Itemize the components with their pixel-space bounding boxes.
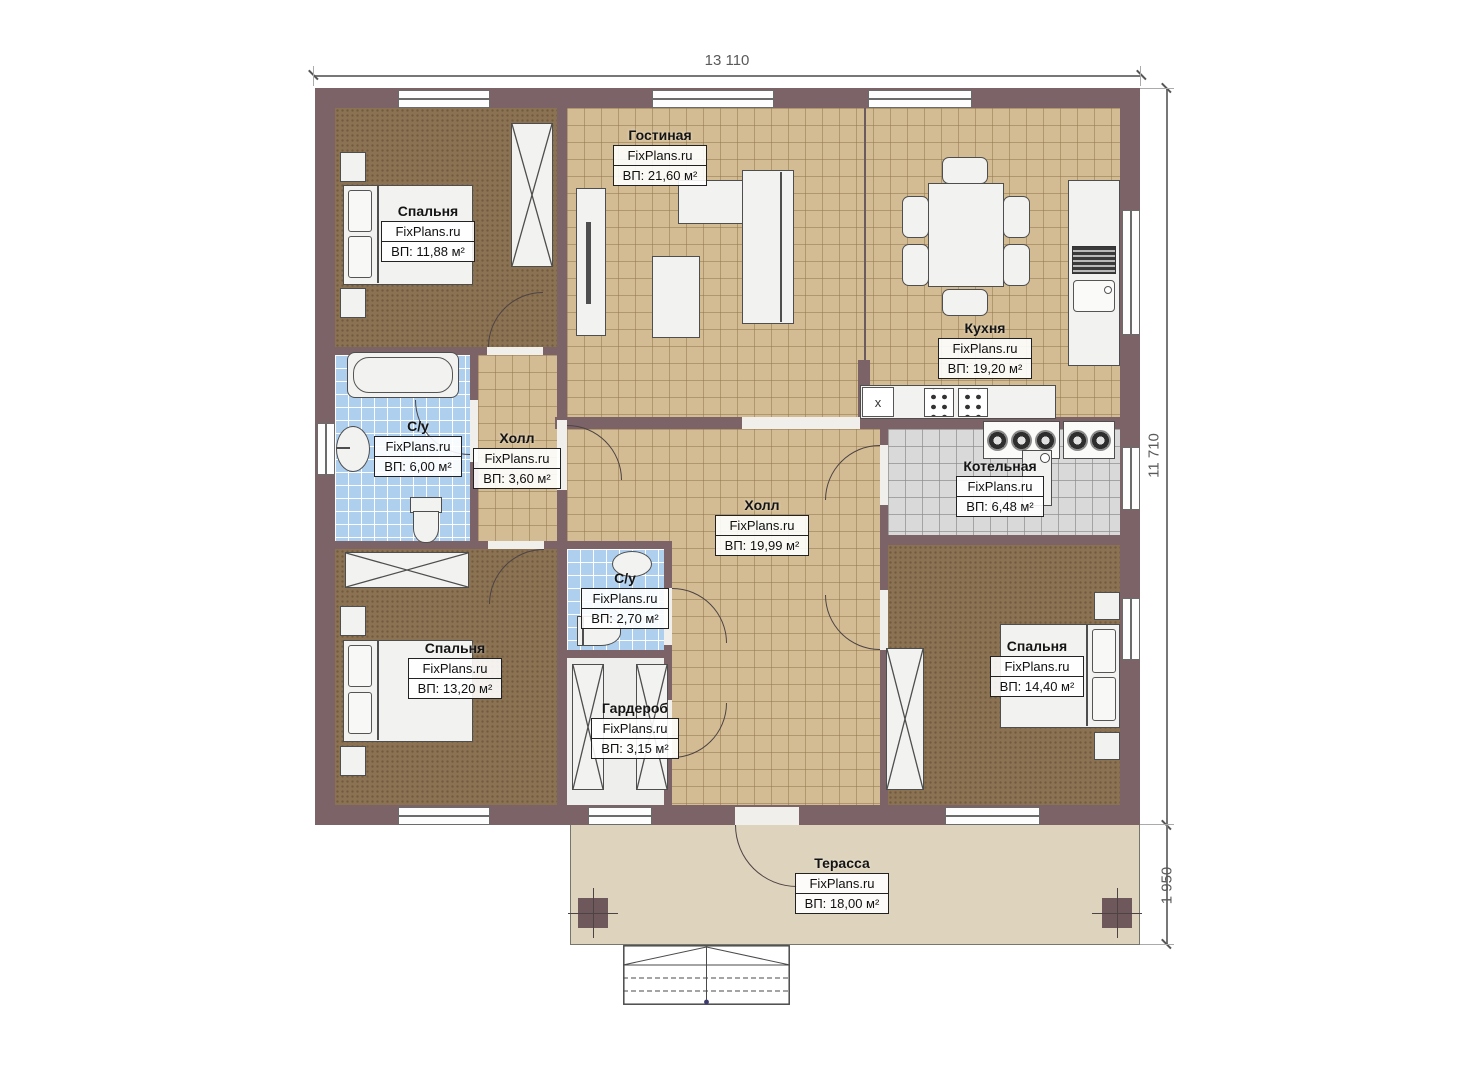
nightstand — [1094, 592, 1120, 620]
chair — [1003, 244, 1030, 286]
counter-x-box: x — [862, 387, 894, 417]
room-label-terrace: Терасса FixPlans.ru ВП: 18,00 м² — [767, 855, 917, 914]
dimension-terrace-label: 1 950 — [1159, 851, 1176, 921]
dimension-line-right — [1166, 88, 1168, 825]
cooktop-burners — [958, 388, 988, 417]
bed-headboard-line — [377, 641, 379, 740]
washer-ring-icon — [1035, 430, 1056, 451]
sofa-section — [742, 170, 794, 324]
room-name: Спальня — [962, 638, 1112, 654]
brand-text: FixPlans.ru — [991, 657, 1084, 676]
room-label-boiler-room: Котельная FixPlans.ru ВП: 6,48 м² — [925, 458, 1075, 517]
room-info-box: FixPlans.ru ВП: 3,15 м² — [591, 718, 678, 759]
room-name: Кухня — [910, 320, 1060, 336]
stove — [1072, 246, 1116, 274]
room-area: ВП: 19,20 м² — [939, 358, 1032, 378]
cooktop-burners — [924, 388, 954, 417]
room-info-box: FixPlans.ru ВП: 21,60 м² — [613, 145, 708, 186]
room-name: Спальня — [353, 203, 503, 219]
dimension-width-label: 13 110 — [313, 52, 1141, 69]
stairs-symbol — [623, 945, 790, 1005]
toilet-bowl — [413, 511, 439, 543]
wall-segment — [888, 535, 1120, 545]
room-area: ВП: 3,15 м² — [592, 738, 677, 758]
room-label-bathroom-small: С/у FixPlans.ru ВП: 2,70 м² — [550, 570, 700, 629]
room-label-bedroom-bottom-left: Спальня FixPlans.ru ВП: 13,20 м² — [380, 640, 530, 699]
brand-text: FixPlans.ru — [409, 659, 502, 678]
wardrobe-symbol — [345, 552, 469, 588]
door-opening — [880, 445, 888, 505]
room-name: Гардероб — [560, 700, 710, 716]
brand-text: FixPlans.ru — [957, 477, 1042, 496]
room-info-box: FixPlans.ru ВП: 6,48 м² — [956, 476, 1043, 517]
chair — [942, 157, 988, 184]
chair — [902, 244, 929, 286]
room-label-wardrobe-room: Гардероб FixPlans.ru ВП: 3,15 м² — [560, 700, 710, 759]
wardrobe-symbol — [886, 648, 924, 790]
nightstand — [340, 152, 366, 182]
room-area: ВП: 3,60 м² — [474, 468, 559, 488]
nightstand — [340, 746, 366, 776]
room-label-living: Гостиная FixPlans.ru ВП: 21,60 м² — [585, 127, 735, 186]
tv-screen — [586, 222, 591, 304]
room-info-box: FixPlans.ru ВП: 11,88 м² — [381, 221, 475, 262]
room-label-bedroom-top-left: Спальня FixPlans.ru ВП: 11,88 м² — [353, 203, 503, 262]
room-name: Спальня — [380, 640, 530, 656]
window — [398, 90, 490, 108]
brand-text: FixPlans.ru — [796, 874, 889, 893]
extension-line — [1140, 66, 1141, 86]
room-label-bedroom-right: Спальня FixPlans.ru ВП: 14,40 м² — [962, 638, 1112, 697]
nightstand — [340, 606, 366, 636]
window — [652, 90, 774, 108]
dimension-line-top — [313, 75, 1141, 77]
room-info-box: FixPlans.ru ВП: 18,00 м² — [795, 873, 890, 914]
extension-line — [1140, 944, 1174, 945]
faucet-dot — [1104, 286, 1112, 294]
room-info-box: FixPlans.ru ВП: 13,20 м² — [408, 658, 503, 699]
tv-cabinet — [576, 188, 606, 336]
bathtub-inner — [353, 357, 453, 393]
room-area: ВП: 18,00 м² — [796, 893, 889, 913]
chair — [902, 196, 929, 238]
room-name: Холл — [442, 430, 592, 446]
dimension-height-label: 11 710 — [1146, 421, 1163, 491]
room-info-box: FixPlans.ru ВП: 14,40 м² — [990, 656, 1085, 697]
room-area: ВП: 19,99 м² — [716, 535, 809, 555]
chair — [1003, 196, 1030, 238]
brand-text: FixPlans.ru — [382, 222, 474, 241]
room-name: Терасса — [767, 855, 917, 871]
coffee-table — [652, 256, 700, 338]
room-info-box: FixPlans.ru ВП: 3,60 м² — [473, 448, 560, 489]
room-info-box: FixPlans.ru ВП: 2,70 м² — [581, 588, 668, 629]
room-label-hall-central: Холл FixPlans.ru ВП: 19,99 м² — [687, 497, 837, 556]
chair — [942, 289, 988, 316]
brand-text: FixPlans.ru — [716, 516, 809, 535]
extension-line — [1140, 824, 1174, 825]
floor-plan-canvas: x Гостиная FixPlans.ru ВП: 21,60 м² — [0, 0, 1473, 1080]
room-area: ВП: 21,60 м² — [614, 165, 707, 185]
brand-text: FixPlans.ru — [614, 146, 707, 165]
stairs — [623, 945, 790, 1005]
x-marker-text: x — [875, 395, 882, 410]
room-label-kitchen: Кухня FixPlans.ru ВП: 19,20 м² — [910, 320, 1060, 379]
brand-text: FixPlans.ru — [582, 589, 667, 608]
brand-text: FixPlans.ru — [939, 339, 1032, 358]
appliance-row — [1063, 421, 1115, 459]
wide-opening — [742, 417, 860, 429]
room-label-hall-small: Холл FixPlans.ru ВП: 3,60 м² — [442, 430, 592, 489]
room-name: Котельная — [925, 458, 1075, 474]
window — [588, 807, 652, 825]
room-area: ВП: 14,40 м² — [991, 676, 1084, 696]
pillow — [348, 692, 372, 734]
nightstand — [340, 288, 366, 318]
room-area: ВП: 13,20 м² — [409, 678, 502, 698]
washer-ring-icon — [987, 430, 1008, 451]
dining-table — [928, 183, 1004, 287]
door-opening — [488, 541, 544, 549]
brand-text: FixPlans.ru — [592, 719, 677, 738]
partition-line — [864, 108, 866, 360]
post-axis-line — [593, 888, 594, 938]
room-area: ВП: 2,70 м² — [582, 608, 667, 628]
terrace-door-opening — [735, 807, 799, 825]
window — [945, 807, 1040, 825]
sofa-back-line — [780, 172, 782, 322]
washer-ring-icon — [1067, 430, 1088, 451]
window — [1122, 598, 1140, 660]
window — [317, 423, 335, 475]
door-opening — [880, 590, 888, 650]
room-name: С/у — [550, 570, 700, 586]
room-name: Холл — [687, 497, 837, 513]
washer-ring-icon — [1011, 430, 1032, 451]
wall-segment — [567, 650, 664, 658]
door-opening — [487, 347, 543, 355]
window — [868, 90, 972, 108]
wall-segment — [567, 541, 664, 549]
pillow — [348, 645, 372, 687]
nightstand — [1094, 732, 1120, 760]
wardrobe-symbol — [511, 123, 553, 267]
post-axis-line — [1117, 888, 1118, 938]
room-area: ВП: 11,88 м² — [382, 241, 474, 261]
room-info-box: FixPlans.ru ВП: 19,20 м² — [938, 338, 1033, 379]
window — [1122, 210, 1140, 335]
washer-ring-icon — [1090, 430, 1111, 451]
brand-text: FixPlans.ru — [474, 449, 559, 468]
room-name: Гостиная — [585, 127, 735, 143]
room-info-box: FixPlans.ru ВП: 19,99 м² — [715, 515, 810, 556]
kitchen-sink — [1073, 280, 1115, 312]
extension-line — [313, 66, 314, 86]
window — [1122, 447, 1140, 510]
extension-line — [1140, 88, 1174, 89]
window — [398, 807, 490, 825]
room-area: ВП: 6,48 м² — [957, 496, 1042, 516]
